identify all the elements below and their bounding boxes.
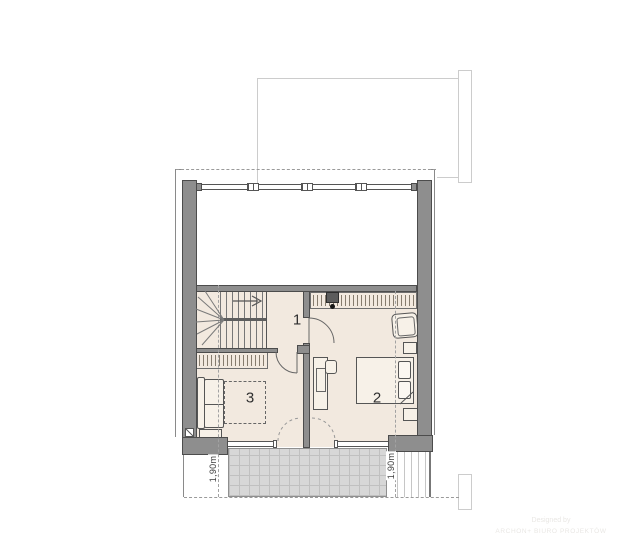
wardrobe-room3	[196, 352, 268, 369]
window-wall-bottom-left	[228, 441, 277, 447]
partition-wall-lower	[303, 343, 310, 448]
window-mullion-3	[355, 183, 367, 191]
roof-hatch-right	[397, 452, 430, 497]
desk-chair	[325, 360, 337, 374]
window-mullion-1	[247, 183, 259, 191]
stair-edge-line	[266, 291, 267, 348]
height-label-right: 1,90m	[386, 452, 396, 481]
room-label-3: 3	[246, 390, 254, 407]
roof-outline	[257, 78, 459, 189]
chimney-bottom-outline	[458, 474, 472, 510]
balcony-terrace	[228, 448, 387, 497]
roof-outline-stub	[437, 177, 459, 178]
height-label-left: 1,90m	[208, 455, 218, 484]
stair-treads-lower	[220, 321, 267, 348]
window-mullion-2	[301, 183, 313, 191]
door-jamb-tick-left	[273, 440, 277, 448]
pillow-top	[398, 361, 411, 379]
drain-box	[185, 428, 194, 437]
lower-line-left	[183, 455, 184, 497]
ground-dashed-line	[184, 497, 459, 498]
pillow-bottom	[398, 381, 411, 399]
stair-treads-upper	[220, 291, 267, 318]
sofa-seat	[204, 379, 224, 428]
sofa-seat-divider	[205, 404, 223, 405]
understair-wall	[196, 348, 278, 353]
exterior-wall-left	[182, 180, 197, 455]
window-wall-bottom-right	[335, 441, 388, 447]
watermark-line1: Designed by	[492, 516, 610, 527]
window-endcap-right	[411, 183, 417, 191]
wall-footing-left	[182, 437, 228, 455]
outer-line-left	[175, 169, 176, 437]
wardrobe-drawer-unit	[326, 292, 339, 303]
room-label-1: 1	[293, 312, 301, 329]
door-jamb-post	[297, 345, 310, 354]
roof-overhang-dashed-line	[176, 169, 436, 170]
height-line-left	[218, 285, 219, 497]
floor-plan-canvas: 1 2 3 1,90m 1,90m Designed by ARCHON+ BI…	[0, 0, 638, 556]
outer-line-right	[434, 169, 435, 435]
wardrobe-knob	[330, 304, 335, 309]
nightstand-upper	[403, 342, 417, 354]
watermark-line2: ARCHON+ BIURO PROJEKTÓW	[492, 527, 610, 537]
door-jamb-tick-right	[334, 440, 338, 448]
window-endcap-left	[196, 183, 202, 191]
nightstand-lower	[403, 408, 418, 421]
watermark: Designed by ARCHON+ BIURO PROJEKTÓW	[492, 516, 610, 536]
armchair-cushion	[396, 316, 416, 336]
room-label-2: 2	[373, 390, 381, 407]
exterior-wall-right	[417, 180, 432, 448]
chimney-top-outline	[458, 70, 472, 183]
partition-wall-upper	[303, 291, 310, 318]
